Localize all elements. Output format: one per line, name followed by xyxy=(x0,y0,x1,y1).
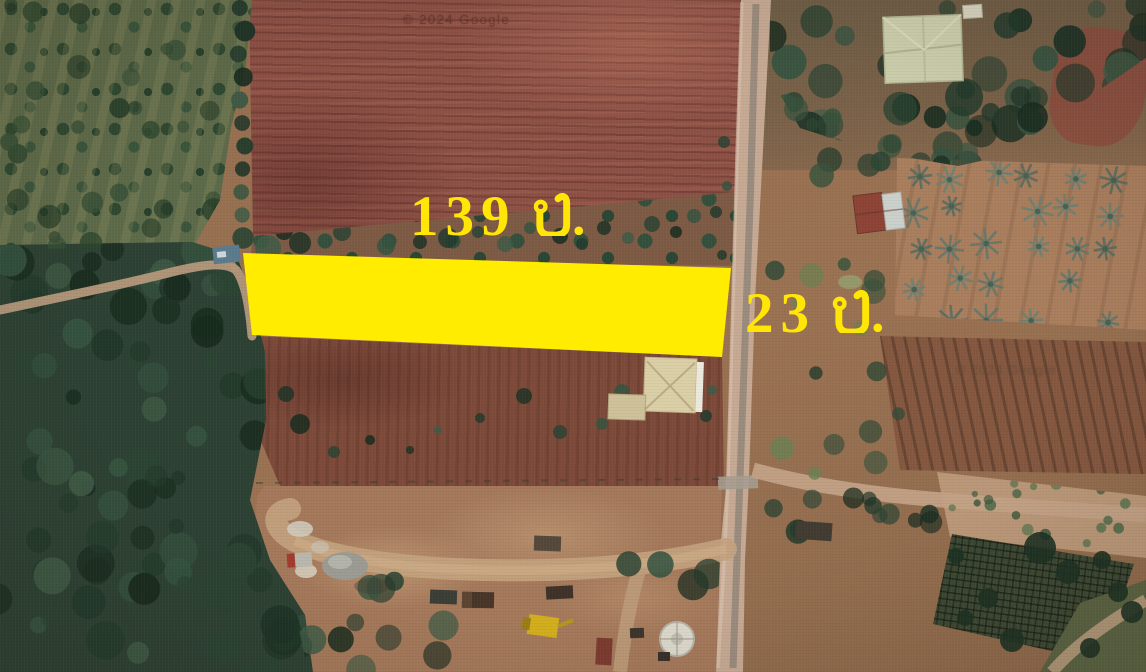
plot-width-value: 139 xyxy=(410,188,517,245)
plot-width-label: 139 xyxy=(410,188,585,245)
thai-meters-unit-glyph xyxy=(531,191,585,236)
plot-annotation-overlay xyxy=(0,0,1146,672)
thai-meters-unit-glyph xyxy=(830,288,884,333)
plot-depth-value: 23 xyxy=(745,285,816,342)
plot-depth-label: 23 xyxy=(745,285,884,342)
satellite-image: © 2024 Google © 2024 Google 139 23 xyxy=(0,0,1146,672)
highlighted-land-plot xyxy=(243,253,731,357)
